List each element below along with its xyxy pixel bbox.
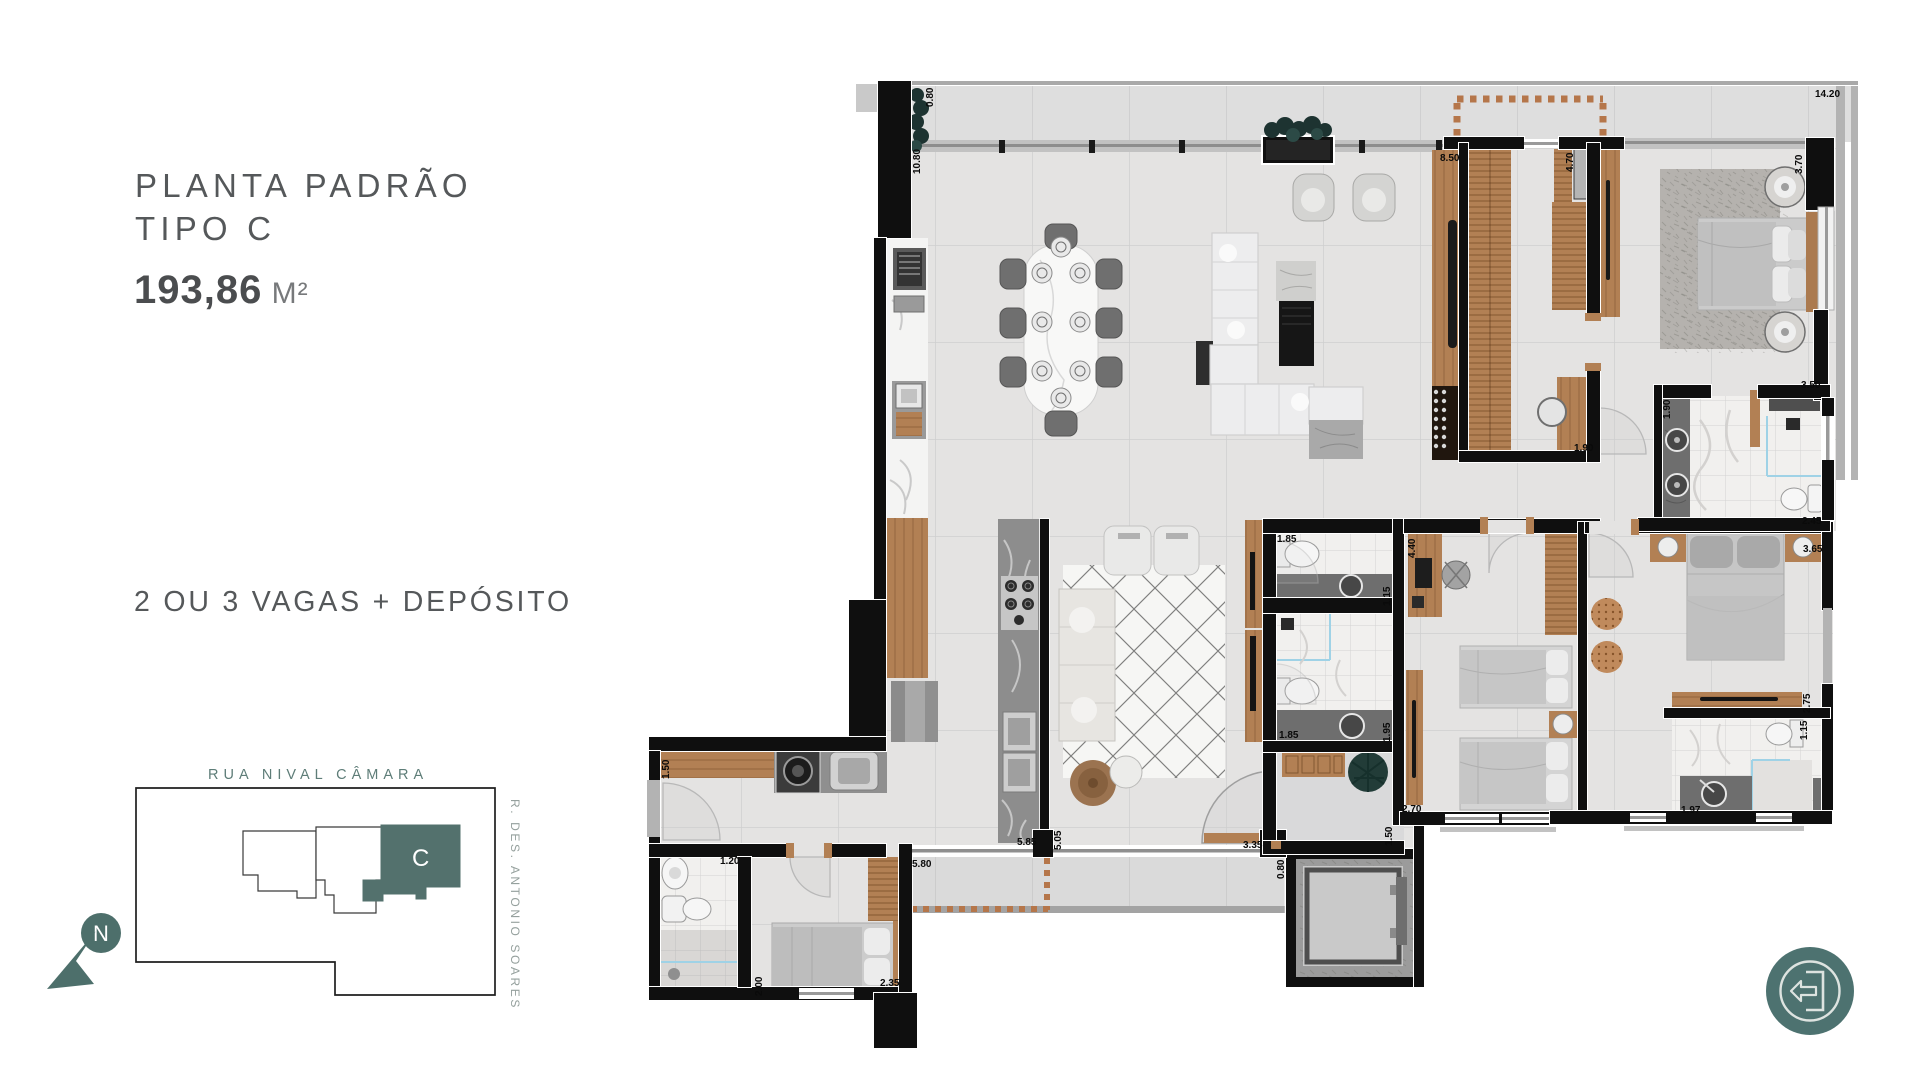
svg-text:1.15: 1.15 [1799,720,1810,740]
svg-text:5.80: 5.80 [912,859,932,870]
svg-text:1.15: 1.15 [1382,586,1393,606]
svg-text:14.20: 14.20 [1815,89,1840,100]
svg-text:1.85: 1.85 [1279,730,1299,741]
svg-text:RUA NIVAL CÂMARA: RUA NIVAL CÂMARA [208,766,428,783]
svg-text:2.45: 2.45 [1802,516,1822,527]
svg-text:3.35: 3.35 [1243,840,1263,851]
svg-text:2.75: 2.75 [1802,693,1813,713]
svg-text:3.65: 3.65 [1803,544,1823,555]
svg-text:3.70: 3.70 [1794,154,1805,174]
svg-text:1.90: 1.90 [1574,443,1594,454]
svg-text:C: C [412,845,429,872]
svg-text:1.50: 1.50 [661,759,672,779]
svg-text:R. DES. ANTONIO SOARES: R. DES. ANTONIO SOARES [508,799,522,1010]
svg-text:5.05: 5.05 [1053,830,1064,850]
svg-text:2.00: 2.00 [754,976,765,996]
svg-text:8.50: 8.50 [1440,153,1460,164]
svg-text:1.95: 1.95 [1382,722,1393,742]
svg-text:1.20: 1.20 [720,856,740,867]
svg-text:1.97: 1.97 [1681,805,1701,816]
svg-text:1.90: 1.90 [1662,399,1673,419]
svg-text:1.85: 1.85 [1277,534,1297,545]
svg-text:5.85: 5.85 [1017,837,1037,848]
svg-text:0.80: 0.80 [1276,859,1287,879]
svg-text:2.35: 2.35 [880,978,900,989]
svg-text:3.50: 3.50 [1801,380,1821,391]
svg-text:N: N [93,921,109,946]
svg-text:4.40: 4.40 [1407,538,1418,558]
svg-text:2.70: 2.70 [1402,804,1422,815]
svg-text:10.80: 10.80 [912,149,923,174]
svg-text:0.80: 0.80 [925,87,936,107]
svg-text:1.50: 1.50 [1384,826,1395,846]
svg-text:4.70: 4.70 [1565,152,1576,172]
